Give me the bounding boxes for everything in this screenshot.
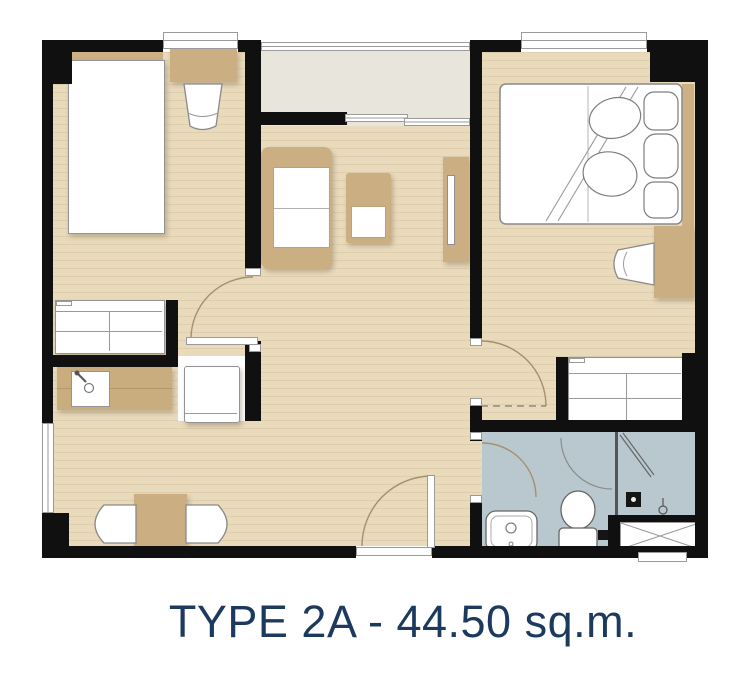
wall-bedroom1-right [245, 52, 261, 268]
wall-bottom-left [42, 546, 356, 558]
bedroom1-door-jamb-hinge [249, 344, 261, 352]
wall-hall-fridge [245, 341, 261, 421]
toilet-bowl [561, 491, 595, 529]
wall-balcony-bottom [261, 112, 347, 125]
wall-bedroom1-kitchen [42, 355, 178, 367]
chair-bedroom2 [614, 243, 654, 285]
bedroom2-door-arc [481, 341, 546, 406]
wall-top-bedroom1-right [238, 40, 261, 52]
shower-faucet [659, 506, 667, 514]
chair-bedroom1 [184, 84, 222, 130]
sink-drain [85, 384, 94, 393]
ac-ledge [638, 552, 687, 562]
toilet-valve [598, 530, 608, 540]
floor-plan: TYPE 2A - 44.50 sq.m. [0, 0, 750, 676]
bathroom-door-jamb-top [470, 432, 482, 440]
wall-bedroom2-left [470, 52, 482, 338]
pier-wardrobe2-right [682, 353, 708, 432]
sink-faucet-base [75, 371, 80, 376]
wall-bathroom-top [470, 420, 708, 432]
dining-window [42, 423, 54, 513]
dining-chair-left [95, 505, 136, 543]
bedroom1-door-jamb-top [245, 268, 261, 276]
shower-mixer-dot [631, 497, 636, 502]
bedroom2-door-jamb-bottom [470, 398, 482, 406]
shower-partition-wall [615, 432, 618, 515]
bedroom2-door-jamb-top [470, 338, 482, 346]
bathroom-door-arc [482, 443, 536, 497]
dining-chair-right [186, 505, 227, 543]
bedroom1-door-leaf [186, 337, 258, 345]
wall-wardrobe1-stub [166, 300, 178, 366]
wall-top-bedroom2-left [470, 40, 521, 52]
wall-right [695, 40, 708, 558]
plan-caption: TYPE 2A - 44.50 sq.m. [0, 596, 750, 648]
entrance-door-leaf [427, 475, 435, 548]
pillow [644, 92, 678, 130]
bedroom2-window [521, 32, 647, 49]
shower-glass-a [620, 435, 651, 477]
wall-wardrobe2-stub [556, 357, 568, 421]
bedroom1-door-arc [191, 277, 253, 339]
entrance-door-arc [362, 476, 432, 546]
pillow [644, 182, 678, 218]
wall-bathroom-bottom [608, 515, 708, 522]
pillow [644, 134, 678, 178]
detail-overlay [0, 0, 750, 676]
balcony-railing [261, 42, 470, 51]
wall-bathroom-left-lower [470, 503, 482, 546]
entrance-threshold [356, 547, 432, 556]
sliding-door-panel-b [404, 118, 470, 126]
bedroom1-window [163, 32, 238, 49]
bathroom-door-jamb-bottom [470, 495, 482, 503]
sink-faucet [78, 374, 86, 382]
shower-door-arc [561, 438, 612, 489]
shower-glass-b [623, 433, 654, 475]
sliding-door-panel-a [345, 114, 408, 122]
